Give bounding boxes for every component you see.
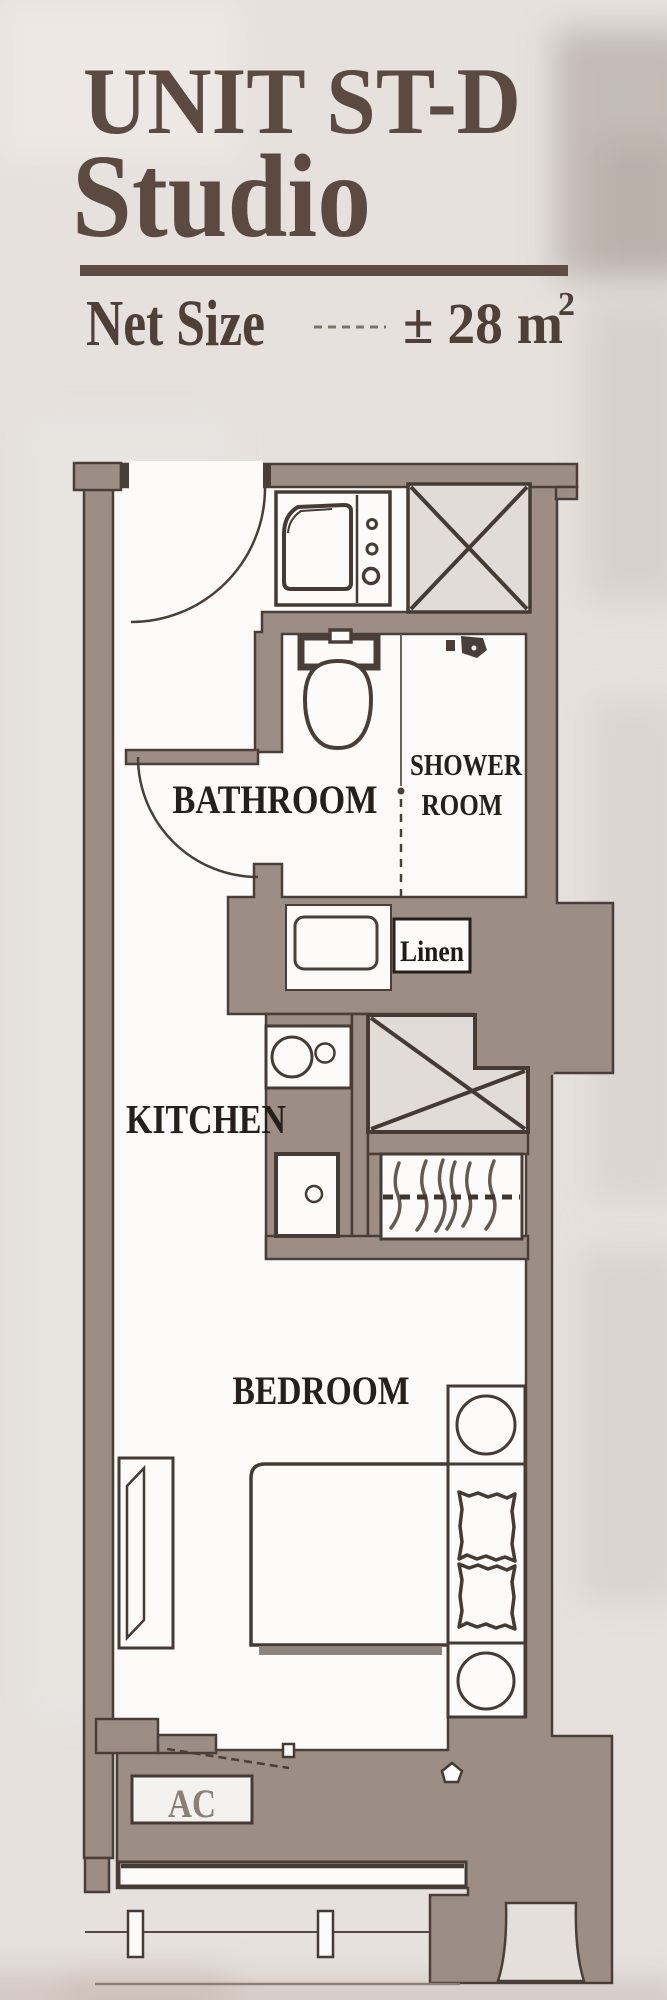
svg-text:Studio: Studio — [72, 130, 371, 262]
svg-text:AC: AC — [168, 1781, 216, 1826]
svg-text:ROOM: ROOM — [422, 787, 503, 822]
svg-text:KITCHEN: KITCHEN — [126, 1096, 286, 1142]
svg-text:2: 2 — [558, 286, 575, 323]
svg-text:BEDROOM: BEDROOM — [233, 1368, 410, 1413]
svg-text:Net Size: Net Size — [86, 287, 265, 360]
svg-text:± 28 m: ± 28 m — [403, 291, 563, 356]
svg-text:SHOWER: SHOWER — [410, 747, 522, 782]
svg-text:Linen: Linen — [400, 935, 464, 968]
svg-text:BATHROOM: BATHROOM — [173, 777, 378, 822]
